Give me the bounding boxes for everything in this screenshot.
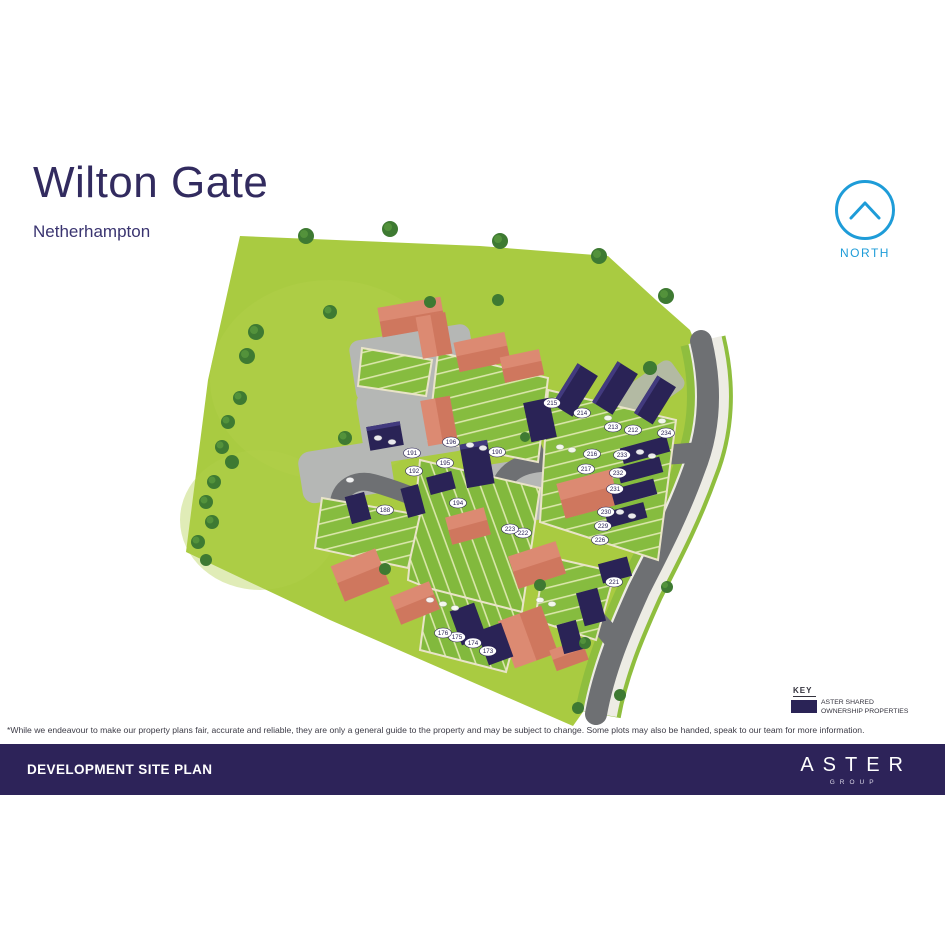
plot-badge: 221: [606, 577, 623, 587]
plot-badge: 195: [437, 458, 454, 468]
plot-badge: 215: [544, 398, 561, 408]
plot-badge: 214: [574, 408, 591, 418]
plot-badge: 234: [658, 428, 675, 438]
svg-text:194: 194: [453, 500, 464, 507]
svg-text:212: 212: [628, 427, 639, 434]
svg-text:173: 173: [483, 648, 494, 655]
svg-text:191: 191: [407, 450, 418, 457]
plot-badge: 194: [450, 498, 467, 508]
footer-title: DEVELOPMENT SITE PLAN: [27, 762, 212, 777]
key-label: ASTER SHARED OWNERSHIP PROPERTIES: [821, 699, 908, 717]
svg-text:234: 234: [661, 430, 672, 437]
svg-text:196: 196: [446, 439, 457, 446]
site-plan-map: 1731741751761881901911921941951962122132…: [0, 0, 945, 945]
plot-badge: 226: [592, 535, 609, 545]
site-plan-page: Wilton Gate Netherhampton NORTH: [0, 0, 945, 945]
plot-badge: 216: [584, 449, 601, 459]
plot-badge: 217: [578, 464, 595, 474]
map-key: KEY ASTER SHARED OWNERSHIP PROPERTIES: [791, 686, 941, 717]
svg-text:226: 226: [595, 537, 606, 544]
svg-text:174: 174: [468, 640, 479, 647]
plot-badge: 223: [502, 524, 519, 534]
plot-badge: 190: [489, 447, 506, 457]
plot-badge: 231: [607, 484, 624, 494]
key-heading: KEY: [793, 686, 816, 697]
plot-badge: 196: [443, 437, 460, 447]
svg-text:214: 214: [577, 410, 588, 417]
svg-text:195: 195: [440, 460, 451, 467]
svg-text:221: 221: [609, 579, 620, 586]
plot-badge: 188: [377, 505, 394, 515]
svg-text:175: 175: [452, 634, 463, 641]
brand-logo: ASTER GROUP: [791, 754, 912, 786]
svg-text:192: 192: [409, 468, 420, 475]
plot-badge: 230: [598, 507, 615, 517]
plot-badge: 173: [480, 646, 497, 656]
svg-text:190: 190: [492, 449, 503, 456]
svg-text:233: 233: [617, 452, 628, 459]
plot-badge: 192: [406, 466, 423, 476]
svg-text:217: 217: [581, 466, 592, 473]
plot-badge: 176: [435, 628, 452, 638]
svg-text:188: 188: [380, 507, 391, 514]
plot-badge: 232: [610, 468, 627, 478]
svg-text:216: 216: [587, 451, 598, 458]
svg-text:229: 229: [598, 523, 609, 530]
plot-badge: 212: [625, 425, 642, 435]
svg-text:223: 223: [505, 526, 516, 533]
footer-bar: DEVELOPMENT SITE PLAN ASTER GROUP: [0, 744, 945, 795]
plot-badge: 213: [605, 422, 622, 432]
svg-text:231: 231: [610, 486, 621, 493]
plot-badge: 191: [404, 448, 421, 458]
svg-text:230: 230: [601, 509, 612, 516]
svg-text:213: 213: [608, 424, 619, 431]
plot-badge: 174: [465, 638, 482, 648]
brand-name: ASTER: [791, 754, 912, 777]
plot-badge: 229: [595, 521, 612, 531]
key-swatch-shared-ownership: [791, 700, 817, 713]
disclaimer-text: *While we endeavour to make our property…: [0, 725, 945, 735]
svg-text:222: 222: [518, 530, 529, 537]
plot-badge: 233: [614, 450, 631, 460]
svg-text:176: 176: [438, 630, 449, 637]
brand-subtitle: GROUP: [791, 779, 912, 786]
svg-text:215: 215: [547, 400, 558, 407]
svg-text:232: 232: [613, 470, 624, 477]
